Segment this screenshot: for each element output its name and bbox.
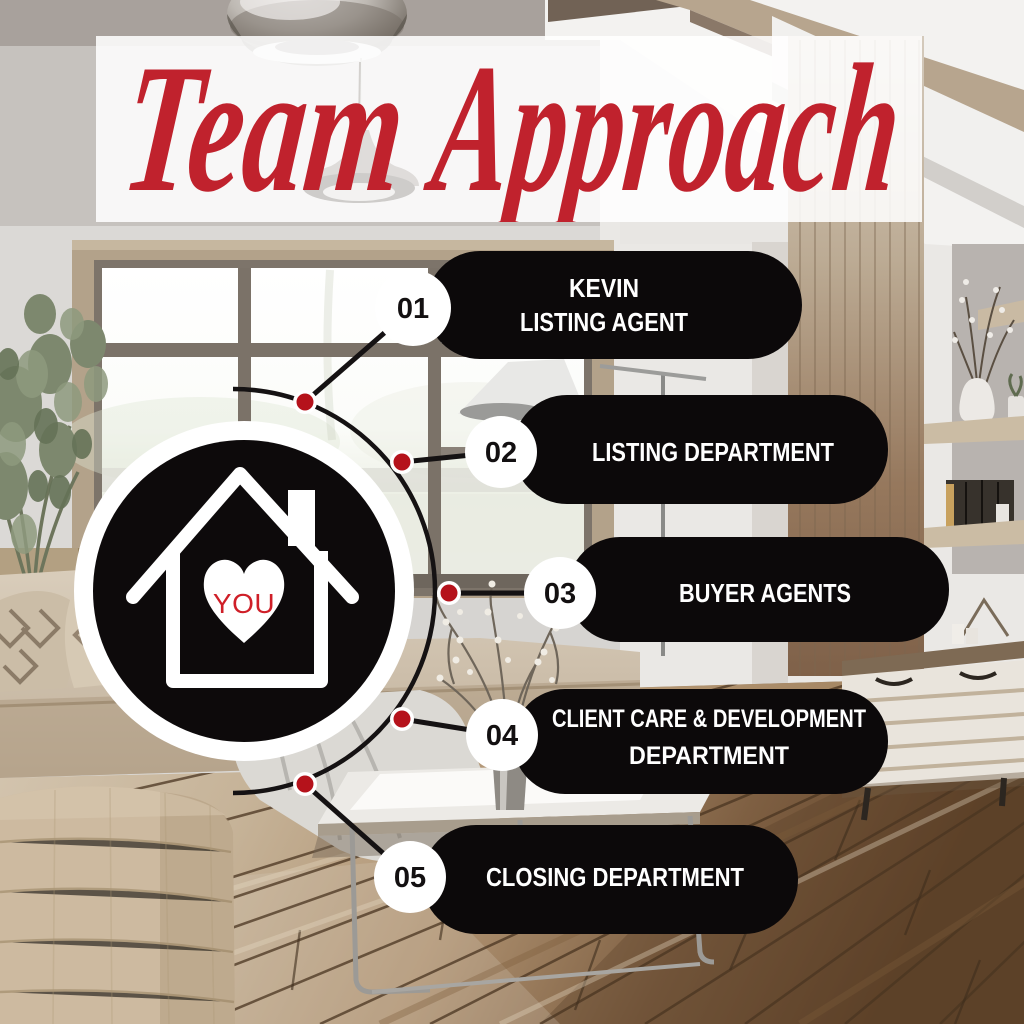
- svg-text:BUYER AGENTS: BUYER AGENTS: [679, 578, 851, 608]
- svg-text:05: 05: [394, 862, 426, 894]
- svg-text:LISTING AGENT: LISTING AGENT: [520, 307, 688, 337]
- svg-text:03: 03: [544, 578, 576, 610]
- svg-text:Team: Team: [115, 26, 414, 229]
- svg-text:YOU: YOU: [213, 588, 275, 619]
- svg-text:CLOSING DEPARTMENT: CLOSING DEPARTMENT: [486, 862, 744, 892]
- svg-text:LISTING DEPARTMENT: LISTING DEPARTMENT: [592, 437, 834, 467]
- svg-text:DEPARTMENT: DEPARTMENT: [629, 742, 789, 770]
- svg-text:CLIENT CARE & DEVELOPMENT: CLIENT CARE & DEVELOPMENT: [552, 705, 866, 733]
- svg-text:04: 04: [486, 720, 518, 752]
- svg-text:01: 01: [397, 293, 429, 325]
- svg-text:KEVIN: KEVIN: [569, 273, 639, 303]
- svg-text:02: 02: [485, 437, 517, 469]
- svg-text:Approach: Approach: [419, 26, 911, 229]
